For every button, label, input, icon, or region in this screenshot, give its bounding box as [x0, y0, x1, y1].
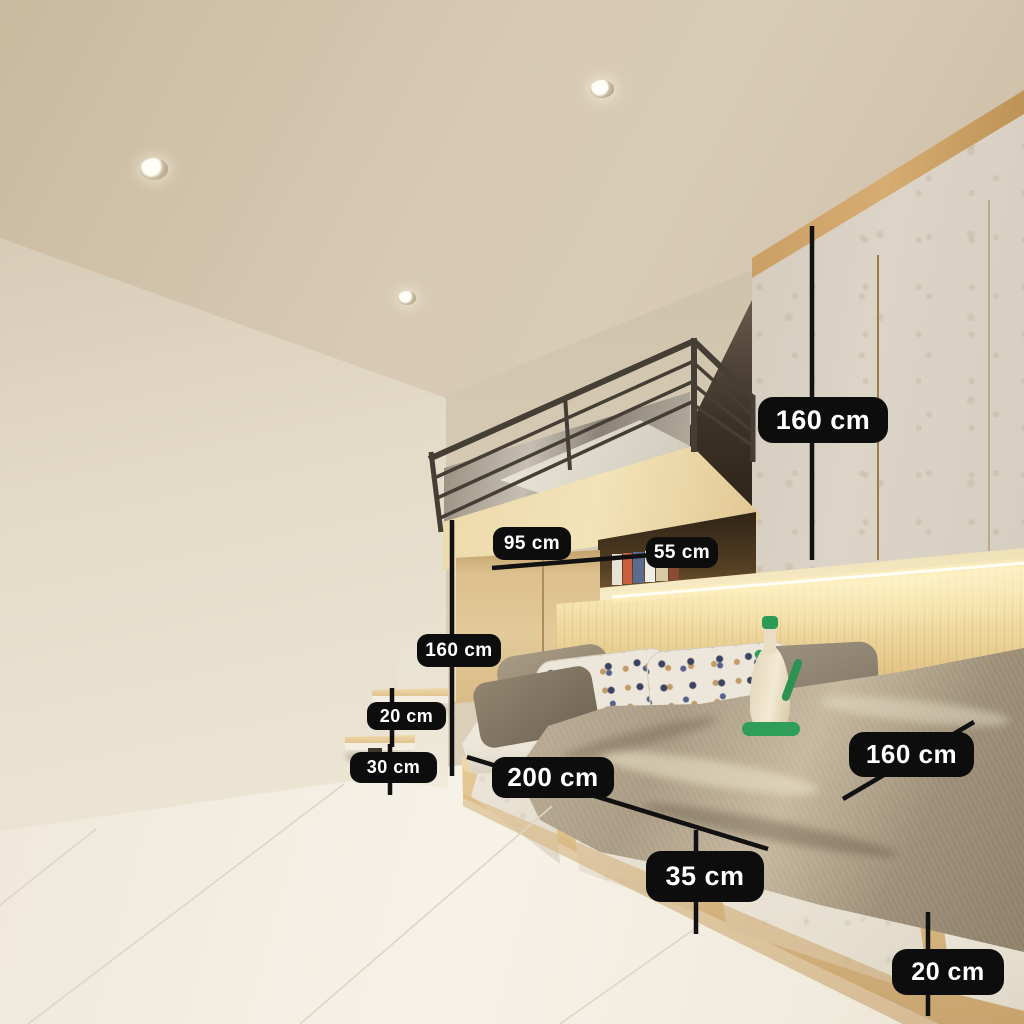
dimension-label-column-height: 160 cm: [417, 634, 501, 667]
dimension-label-bed-length: 200 cm: [492, 757, 614, 798]
dimension-label-bed-width: 160 cm: [849, 732, 974, 777]
floor-tile-lines: [0, 784, 700, 1024]
dimension-label-wardrobe-height: 160 cm: [758, 397, 888, 443]
linework-overlay: [0, 0, 1024, 1024]
dimension-label-cabinet-top: 95 cm: [493, 527, 571, 560]
loft-railing: [429, 338, 753, 532]
room-render: 160 cm 95 cm 55 cm 160 cm 20 cm 30 cm 20…: [0, 0, 1024, 1024]
led-strip: [612, 563, 1024, 598]
dimension-label-step-upper: 20 cm: [367, 702, 446, 730]
dimension-label-shelf-depth: 55 cm: [646, 537, 718, 568]
dimension-label-base-height: 35 cm: [646, 851, 764, 902]
dimension-label-step-lower: 30 cm: [350, 752, 437, 783]
dimension-label-drawer-height: 20 cm: [892, 949, 1004, 995]
